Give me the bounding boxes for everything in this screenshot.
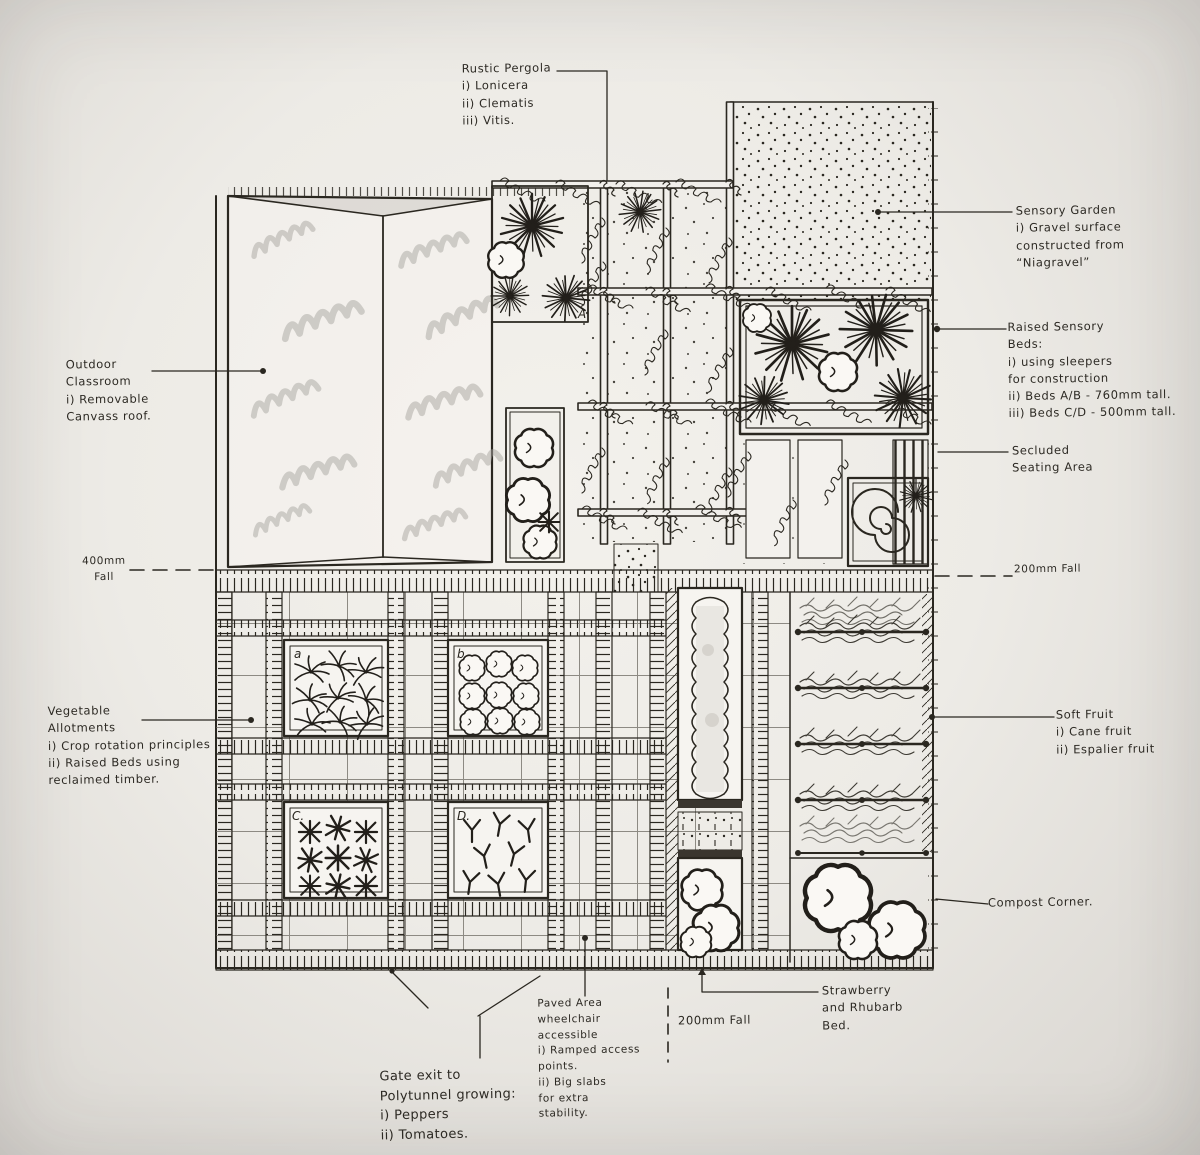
annotation-compost-corner: Compost Corner.: [988, 893, 1093, 912]
annotation-raised-sensory-beds: Raised SensoryBeds:i) using sleepersfor …: [1007, 317, 1176, 423]
annotation-outdoor-classroom: OutdoorClassroomi) RemovableCanvass roof…: [66, 355, 152, 425]
annotation-strawberry-bed: Strawberryand RhubarbBed.: [822, 982, 903, 1035]
strawberry-rhubarb-bed: [678, 858, 742, 957]
annotation-fall-bottom: 200mm Fall: [678, 1012, 751, 1030]
annotation-rustic-pergola: Rustic Pergolai) Loniceraii) Clematisiii…: [462, 59, 552, 129]
annotation-soft-fruit: Soft Fruiti) Cane fruitii) Espalier frui…: [1056, 705, 1155, 758]
raised-beds-cd: [728, 440, 928, 564]
annotation-paved-area: Paved Areawheelchairaccessiblei) Ramped …: [537, 995, 641, 1122]
bed-label-c: C.: [292, 809, 304, 823]
cane-row: [795, 727, 929, 755]
cane-row: [795, 615, 929, 643]
bed-label-d: D.: [457, 809, 470, 823]
annotation-secluded-seating: SecludedSeating Area: [1012, 442, 1093, 477]
bed-label-a: a: [294, 647, 301, 661]
annotation-fall-left: 400mmFall: [72, 554, 136, 586]
compost-corner: [790, 858, 933, 959]
annotation-gate-exit: Gate exit toPolytunnel growing:i) Pepper…: [379, 1065, 517, 1146]
raised-sensory-bed: [732, 285, 936, 434]
sketch-photo: a b C. D. A Rustic Pergolai) Loniceraii)…: [0, 0, 1200, 1155]
bed-label-top-a: A: [577, 307, 586, 321]
cane-row: [795, 783, 929, 811]
annotation-vegetable-allotments: VegetableAllotmentsi) Crop rotation prin…: [47, 701, 210, 789]
climber-bed: [678, 588, 742, 800]
shrub-bed: [506, 408, 564, 562]
cane-row: [795, 671, 929, 699]
bed-label-b: b: [457, 647, 465, 661]
annotation-sensory-garden: Sensory Gardeni) Gravel surfaceconstruct…: [1016, 201, 1125, 271]
annotation-fall-right: 200mm Fall: [1014, 562, 1081, 579]
